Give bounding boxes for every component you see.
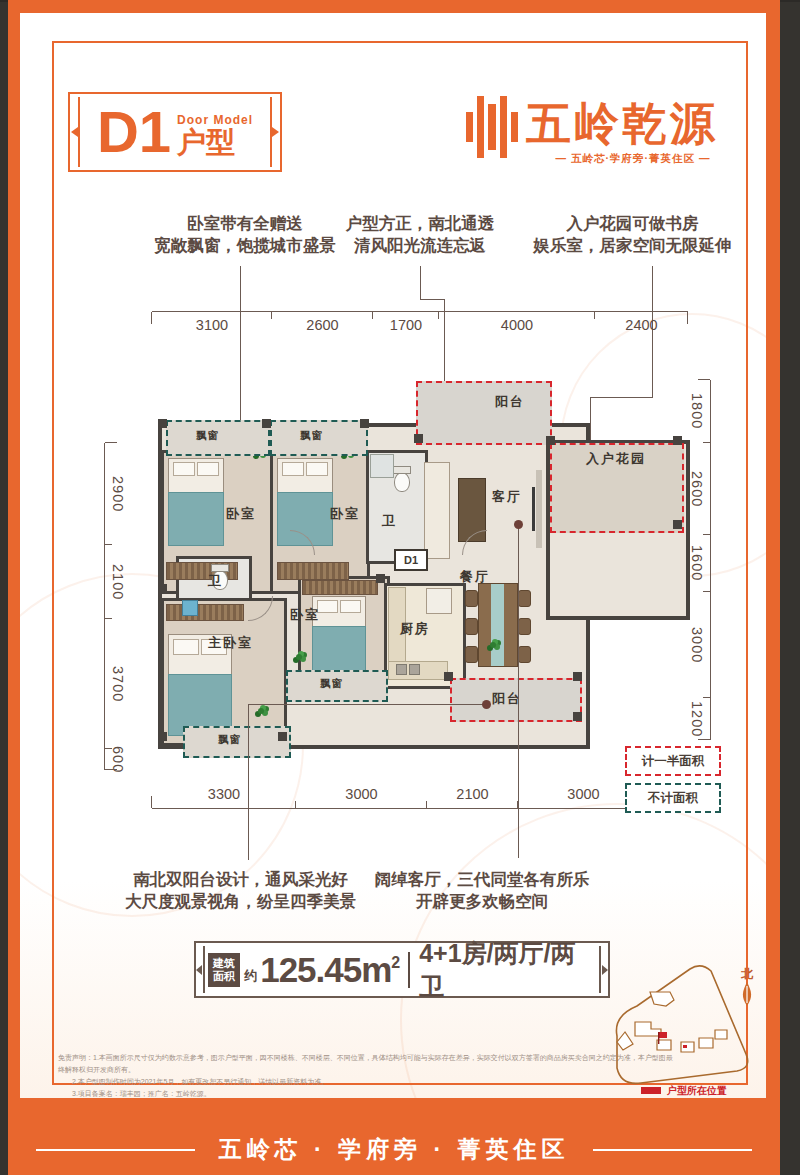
area-badge: 建筑 面积 bbox=[208, 953, 240, 987]
tv-cabinet bbox=[536, 470, 542, 548]
sink bbox=[409, 664, 420, 675]
arrow-left-icon bbox=[71, 127, 78, 137]
unit-model: D1 bbox=[97, 103, 171, 161]
dim-value: 3300 bbox=[152, 784, 296, 808]
dimension-chain-bottom: 3300 3000 2100 3000 900 bbox=[152, 784, 688, 809]
dim-value: 2600 bbox=[272, 312, 373, 333]
unit-type-badge: D1 Door Model 户型 bbox=[68, 92, 282, 172]
spec-banner: 建筑 面积 约 125.45m2 4+1房/两厅/两卫 bbox=[194, 941, 610, 998]
fridge bbox=[426, 588, 452, 614]
legend-half-area: 计一半面积 bbox=[625, 746, 721, 776]
brand-logo: 五岭乾源 — 五岭芯·学府旁·菁英住区 — bbox=[452, 94, 742, 172]
sofa bbox=[424, 462, 450, 559]
label-dining-room: 餐厅 bbox=[460, 568, 490, 586]
bed bbox=[312, 596, 366, 674]
label-entry-garden: 入户花园 bbox=[586, 450, 646, 468]
label-master-bedroom: 主卧室 bbox=[208, 634, 253, 652]
label-bay-window: 飘窗 bbox=[300, 429, 323, 443]
dim-value: 1200 bbox=[689, 701, 705, 737]
site-buildings bbox=[657, 1030, 727, 1052]
label-living-room: 客厅 bbox=[492, 488, 522, 506]
area-value: 125.45m2 bbox=[260, 950, 399, 990]
callout-dot bbox=[482, 700, 491, 709]
disclaimer: 免责声明：1.本画面所示尺寸仅为约数示意参考，图示户型平面，因不同楼栋、不同楼层… bbox=[58, 1052, 678, 1100]
dimension-chain-top: 3100 2600 1700 4000 2400 bbox=[152, 311, 688, 333]
dim-value: 2900 bbox=[110, 476, 126, 512]
wardrobe bbox=[277, 562, 349, 580]
toilet bbox=[394, 472, 410, 492]
layout-value: 4+1房/两厅/两卫 bbox=[419, 937, 596, 1003]
legend-no-area: 不计面积 bbox=[625, 783, 721, 813]
feature-top-2: 户型方正，南北通透 清风阳光流连忘返 bbox=[300, 212, 540, 256]
site-legend-label: 户型所在位置 bbox=[666, 1085, 727, 1096]
arrow-left-icon bbox=[196, 965, 202, 975]
logo-mark-icon bbox=[466, 96, 518, 158]
label-kitchen: 厨房 bbox=[400, 620, 430, 638]
dim-value: 1800 bbox=[689, 393, 705, 429]
callout-line bbox=[248, 704, 249, 860]
dim-value: 3700 bbox=[110, 666, 126, 702]
toilet-tank bbox=[211, 564, 229, 572]
dim-value: 3100 bbox=[152, 312, 272, 333]
label-bay-window: 飘窗 bbox=[218, 733, 241, 747]
footer-divider bbox=[36, 1149, 195, 1151]
spec-divider bbox=[408, 952, 410, 988]
dim-value: 600 bbox=[110, 746, 126, 773]
brand-name: 五岭乾源 bbox=[526, 94, 718, 154]
north-label: 北 bbox=[740, 967, 754, 981]
arrow-right-icon bbox=[272, 127, 279, 137]
label-bedroom: 卧室 bbox=[226, 505, 256, 523]
label-bedroom: 卧室 bbox=[290, 606, 320, 624]
feature-top-3: 入户花园可做书房 娱乐室，居家空间无限延伸 bbox=[505, 212, 760, 256]
wardrobe bbox=[166, 604, 244, 621]
chair bbox=[518, 590, 531, 607]
footer-slogan: 五岭芯 · 学府旁 · 菁英住区 bbox=[219, 1134, 570, 1165]
unit-model-cn: 户型 bbox=[177, 127, 235, 159]
unit-model-en: Door Model bbox=[177, 113, 253, 127]
label-bathroom: 卫 bbox=[382, 512, 397, 530]
label-bathroom: 卫 bbox=[208, 572, 223, 590]
feature-bottom-2: 阔绰客厅，三代同堂各有所乐 开辟更多欢畅空间 bbox=[362, 868, 602, 912]
callout-line bbox=[518, 524, 519, 858]
chair bbox=[518, 618, 531, 635]
dim-value: 2600 bbox=[689, 471, 705, 507]
chair bbox=[465, 618, 478, 635]
callout-line bbox=[590, 397, 653, 398]
dim-value: 3000 bbox=[296, 784, 427, 808]
bed bbox=[277, 458, 333, 546]
toilet-tank bbox=[393, 466, 411, 474]
label-bay-window: 飘窗 bbox=[320, 677, 343, 691]
chair bbox=[465, 646, 478, 663]
room-balcony-north bbox=[416, 381, 552, 445]
site-legend-swatch bbox=[641, 1087, 661, 1094]
feature-bottom-1: 南北双阳台设计，通风采光好 大尺度观景视角，纷呈四季美景 bbox=[118, 868, 363, 912]
label-balcony: 阳台 bbox=[495, 393, 525, 411]
label-bay-window: 飘窗 bbox=[196, 429, 219, 443]
plant-icon bbox=[490, 642, 496, 648]
dim-value: 4000 bbox=[439, 312, 595, 333]
dining-table bbox=[478, 583, 518, 667]
tv bbox=[532, 487, 535, 531]
dim-value: 2400 bbox=[595, 312, 688, 333]
wardrobe bbox=[302, 580, 378, 595]
dim-value: 2100 bbox=[427, 784, 518, 808]
chair bbox=[518, 646, 531, 663]
dim-value: 2100 bbox=[110, 564, 126, 600]
plant-icon bbox=[258, 708, 264, 714]
label-bedroom: 卧室 bbox=[330, 505, 360, 523]
shower bbox=[370, 454, 394, 478]
plan-tag: D1 bbox=[394, 549, 428, 571]
site-plan: 北 户型所在位置 bbox=[595, 960, 770, 1102]
brand-tagline: — 五岭芯·学府旁·菁英住区 — bbox=[528, 152, 738, 166]
dim-value: 1700 bbox=[373, 312, 439, 333]
callout-line bbox=[420, 299, 445, 300]
dimension-chain-left: 2900 2100 3700 600 bbox=[104, 443, 131, 770]
flyer-page: D1 Door Model 户型 五岭乾源 — 五岭芯·学府旁·菁英住区 — 卧… bbox=[0, 0, 800, 1175]
callout-line bbox=[420, 266, 421, 300]
chair bbox=[465, 590, 478, 607]
callout-line bbox=[248, 704, 486, 705]
footer-band: 五岭芯 · 学府旁 · 菁英住区 bbox=[8, 1098, 780, 1175]
dim-value: 3000 bbox=[689, 627, 705, 663]
approx-label: 约 bbox=[244, 967, 257, 985]
washer bbox=[182, 600, 198, 616]
footer-divider bbox=[593, 1149, 752, 1151]
dim-value: 1600 bbox=[689, 545, 705, 581]
bed bbox=[168, 458, 224, 546]
callout-dot bbox=[514, 520, 523, 529]
plant-icon bbox=[296, 654, 302, 660]
sink bbox=[396, 664, 407, 675]
